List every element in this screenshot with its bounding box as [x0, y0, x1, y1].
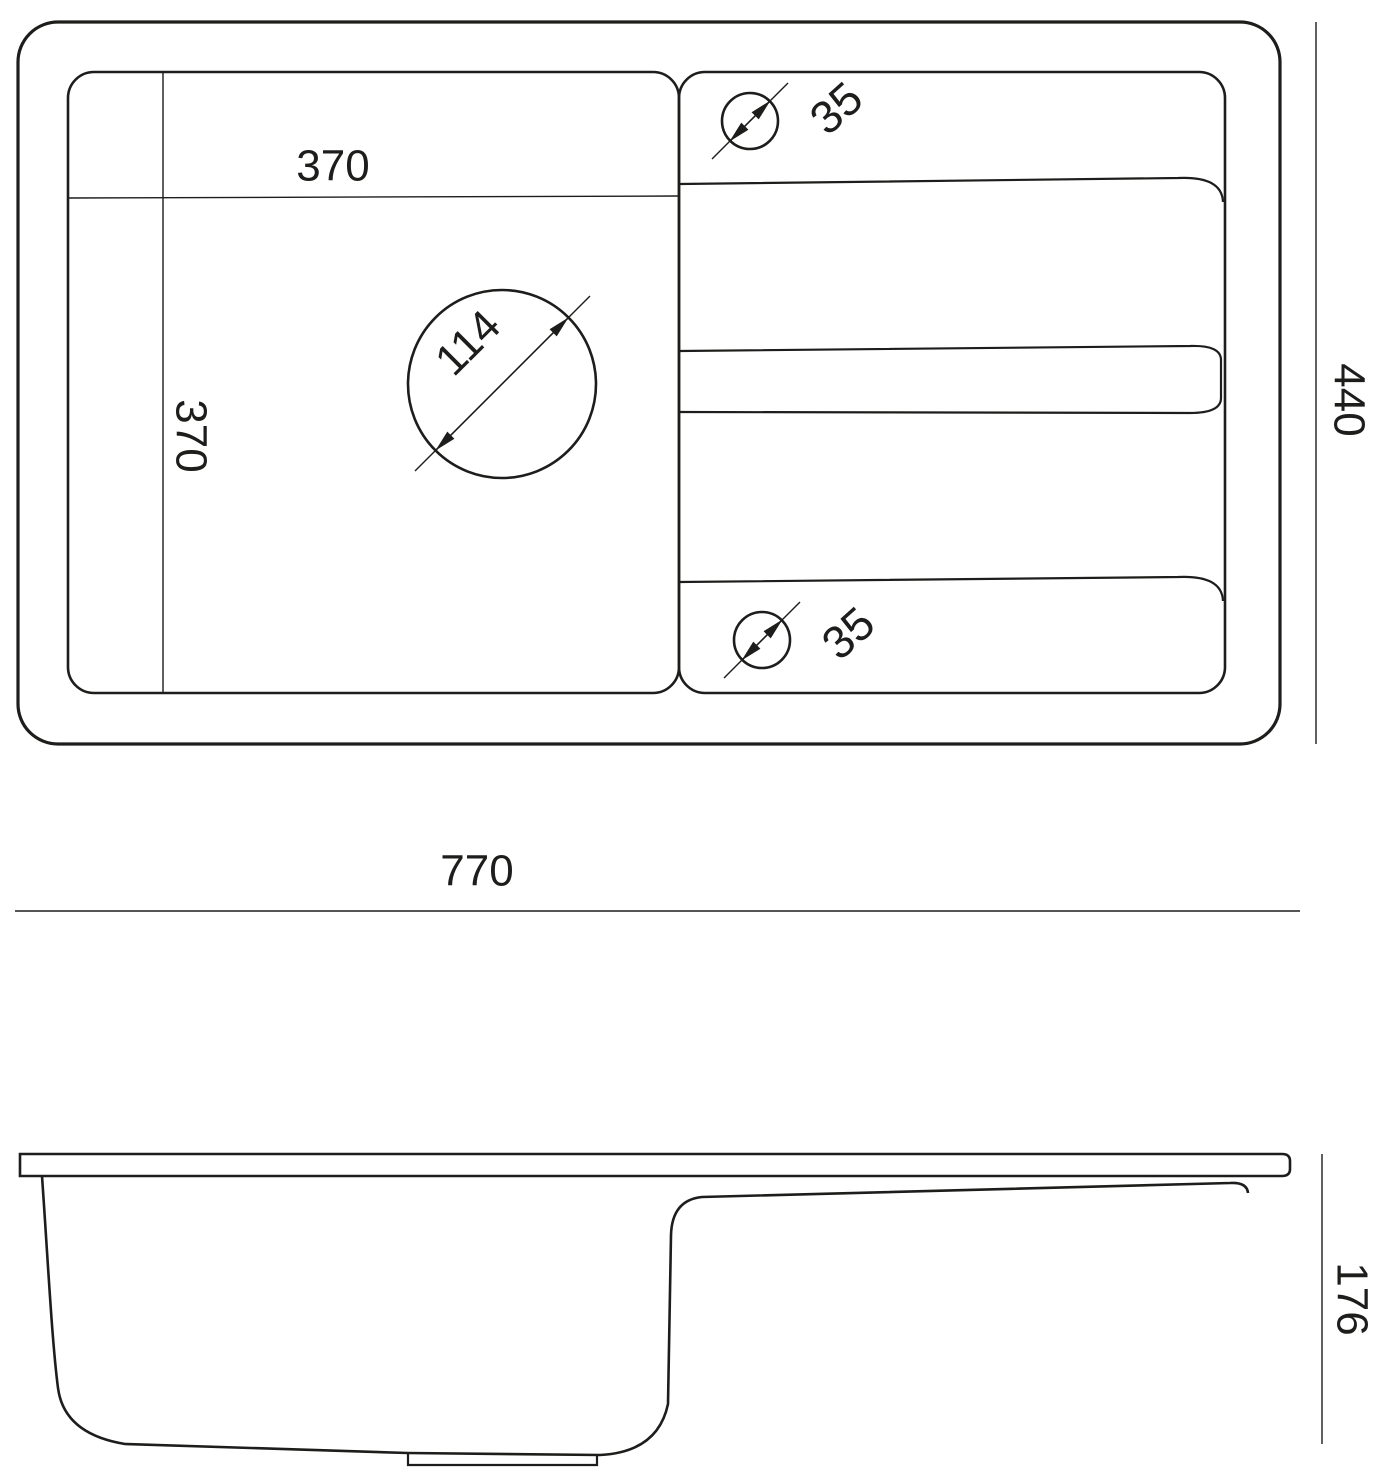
side-profile	[42, 1176, 1248, 1455]
bowl-outline	[68, 72, 679, 693]
dimension-label-overall-width: 770	[440, 847, 513, 896]
side-flange	[20, 1154, 1290, 1176]
drainboard-ridge-top	[680, 178, 1223, 202]
dimension-label-side-height: 176	[1328, 1262, 1377, 1335]
side-height-dimension: 176	[1322, 1154, 1377, 1444]
tap-hole-top-arrows	[730, 101, 770, 141]
dimension-label-bowl-depth: 370	[167, 399, 216, 472]
dimension-label-tap-hole-bottom: 35	[812, 597, 885, 670]
tap-hole-bottom: 35	[724, 597, 884, 678]
outer-edge	[18, 22, 1280, 744]
tap-hole-bottom-arrows	[742, 620, 782, 660]
dimension-label-overall-depth: 440	[1325, 363, 1374, 436]
drainboard-center-channel	[680, 346, 1221, 413]
overall-depth-dimension: 440	[1316, 22, 1374, 744]
bowl-horizontal-reference-line	[69, 196, 678, 198]
dimension-label-tap-hole-top: 35	[800, 72, 873, 145]
tap-hole-top: 35	[712, 72, 872, 159]
dimension-label-bowl-width: 370	[296, 142, 369, 191]
sink-technical-drawing: 114 35 35 370 370 4	[0, 0, 1383, 1469]
drawing-canvas: 114 35 35 370 370 4	[0, 0, 1383, 1469]
overall-width-dimension: 770	[15, 847, 1300, 912]
drainboard-ridge-bottom	[680, 577, 1223, 601]
top-view: 114 35 35 370 370 4	[18, 22, 1374, 744]
drain-hole: 114	[408, 290, 596, 478]
side-view: 176	[20, 1154, 1377, 1465]
drainboard-rim	[679, 72, 1225, 693]
